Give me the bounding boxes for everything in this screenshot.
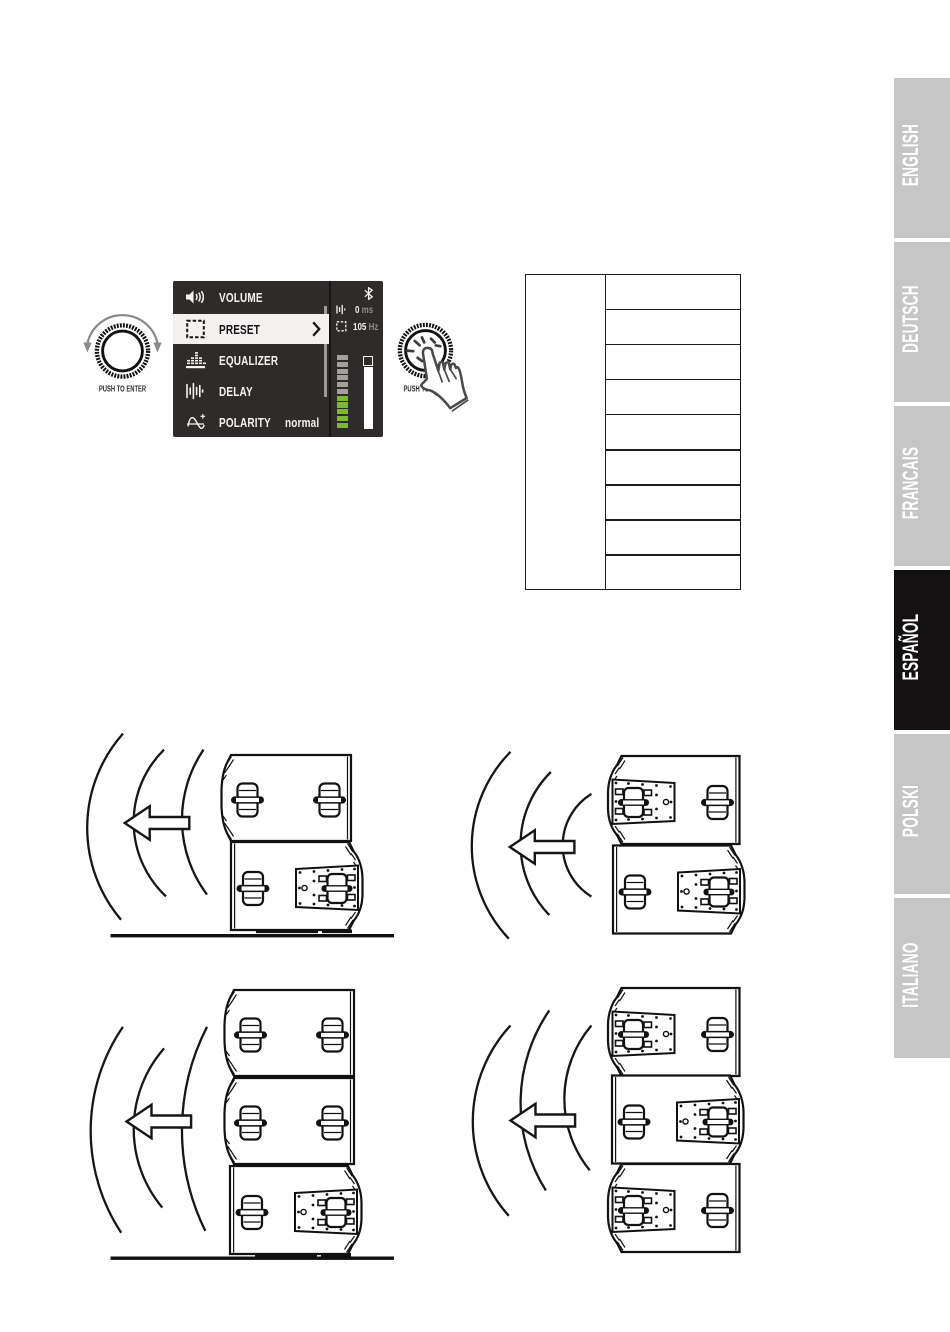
svg-text:PUSH TO ENTER: PUSH TO ENTER <box>99 383 147 394</box>
